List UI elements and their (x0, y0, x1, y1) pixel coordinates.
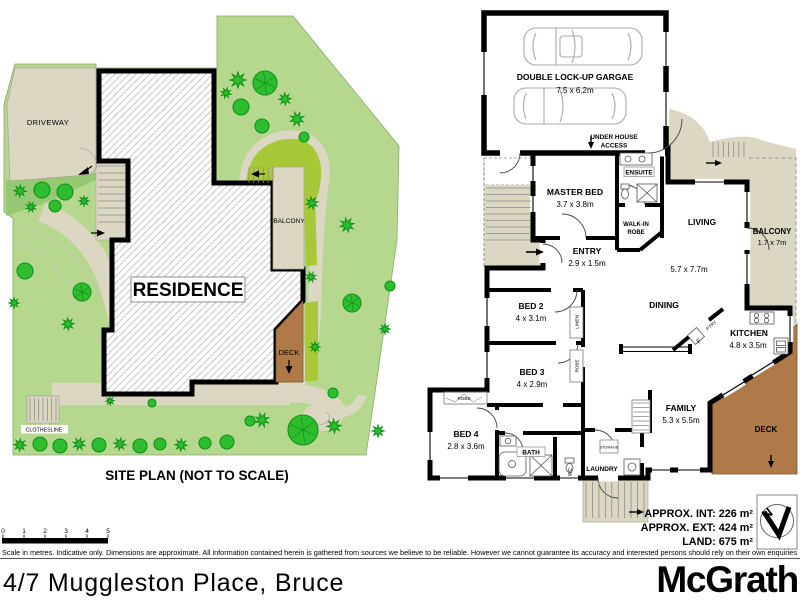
bed3-label: BED 3 (519, 367, 544, 377)
robe-label: ROBE (457, 396, 470, 401)
property-address: 4/7 Muggleston Place, Bruce (3, 569, 344, 597)
master-bed-dims: 3.7 x 3.8m (556, 200, 594, 209)
balcony-label: BALCONY (753, 227, 792, 236)
entry-label: ENTRY (573, 246, 602, 256)
residence-label: RESIDENCE (133, 280, 244, 301)
stat-int: APPROX. INT: 226 m² (644, 508, 753, 520)
area-stats: APPROX. INT: 226 m² APPROX. EXT: 424 m² … (641, 508, 754, 548)
floorplan-image: DRIVEWAY RESIDENCE BALCONY DECK CLOTHESL… (0, 0, 800, 600)
scale-tick: 1 (22, 528, 26, 535)
garage (484, 13, 666, 153)
floor-plan: DOUBLE LOCK-UP GARGAE 7.5 x 6.2m UNDER H… (430, 13, 797, 549)
driveway-label: DRIVEWAY (27, 118, 69, 127)
stat-ext: APPROX. EXT: 424 m² (641, 522, 754, 534)
kitchen-label: KITCHEN (730, 328, 768, 338)
ensuite-label: ENSUITE (625, 170, 652, 177)
clothesline-label: CLOTHESLINE (26, 428, 63, 434)
stat-land: LAND: 675 m² (682, 536, 753, 548)
laundry-label: LAUNDRY (586, 466, 618, 473)
bed4-label: BED 4 (453, 429, 478, 439)
site-balcony-label: BALCONY (273, 218, 305, 225)
bed2-dims: 4 x 3.1m (516, 314, 547, 323)
floorplan-page: DRIVEWAY RESIDENCE BALCONY DECK CLOTHESL… (0, 0, 800, 600)
linen-label: LINEN (575, 315, 580, 329)
scale-tick: 3 (64, 528, 68, 535)
master-bed-label: MASTER BED (547, 187, 603, 197)
bed4-dims: 2.8 x 3.6m (447, 442, 485, 451)
kitchen-dims: 4.8 x 3.5m (729, 341, 767, 350)
wc-label: WC (568, 467, 574, 476)
under-house-label: UNDER HOUSE (590, 134, 638, 141)
scale-tick: 4 (85, 528, 89, 535)
scale-tick: 2 (43, 528, 47, 535)
family-label: FAMILY (666, 403, 697, 413)
scale-tick: 5 (106, 528, 110, 535)
bed2-label: BED 2 (518, 301, 543, 311)
deck-label: DECK (755, 425, 778, 434)
scale-bar-rule (2, 538, 108, 544)
balcony-dims: 1.7 x 7m (758, 238, 787, 247)
disclaimer-text: Scale in metres. Indicative only. Dimens… (2, 548, 797, 557)
lawn-strip (305, 301, 318, 382)
entry-dims: 2.9 x 1.5m (568, 259, 606, 268)
site-deck-label: DECK (279, 348, 300, 357)
clothesline-icon (27, 396, 59, 423)
bed3-dims: 4 x 2.9m (517, 380, 548, 389)
walk-in-robe-label2: ROBE (627, 230, 644, 236)
scale-bar: 0 1 2 3 4 5 (1, 528, 110, 544)
walk-in-robe-label: WALK-IN (623, 222, 649, 228)
compass: N (757, 495, 797, 549)
garage-dims: 7.5 x 6.2m (556, 86, 594, 95)
bath-label: BATH (522, 450, 540, 457)
dining-label: DINING (649, 300, 679, 310)
garage-label: DOUBLE LOCK-UP GARGAE (517, 72, 634, 82)
site-plan-caption: SITE PLAN (NOT TO SCALE) (105, 468, 289, 483)
robe-label: ROBE (575, 359, 580, 372)
storage-label: STORAGE (600, 445, 619, 450)
under-house-label2: ACCESS (601, 143, 628, 150)
site-plan: DRIVEWAY RESIDENCE BALCONY DECK CLOTHESL… (4, 16, 399, 483)
brand-logo: McGrath (656, 559, 798, 600)
family-dims: 5.3 x 5.5m (662, 416, 700, 425)
living-label: LIVING (688, 217, 717, 227)
living-dims: 5.7 x 7.7m (670, 265, 708, 274)
scale-tick: 0 (1, 528, 5, 535)
